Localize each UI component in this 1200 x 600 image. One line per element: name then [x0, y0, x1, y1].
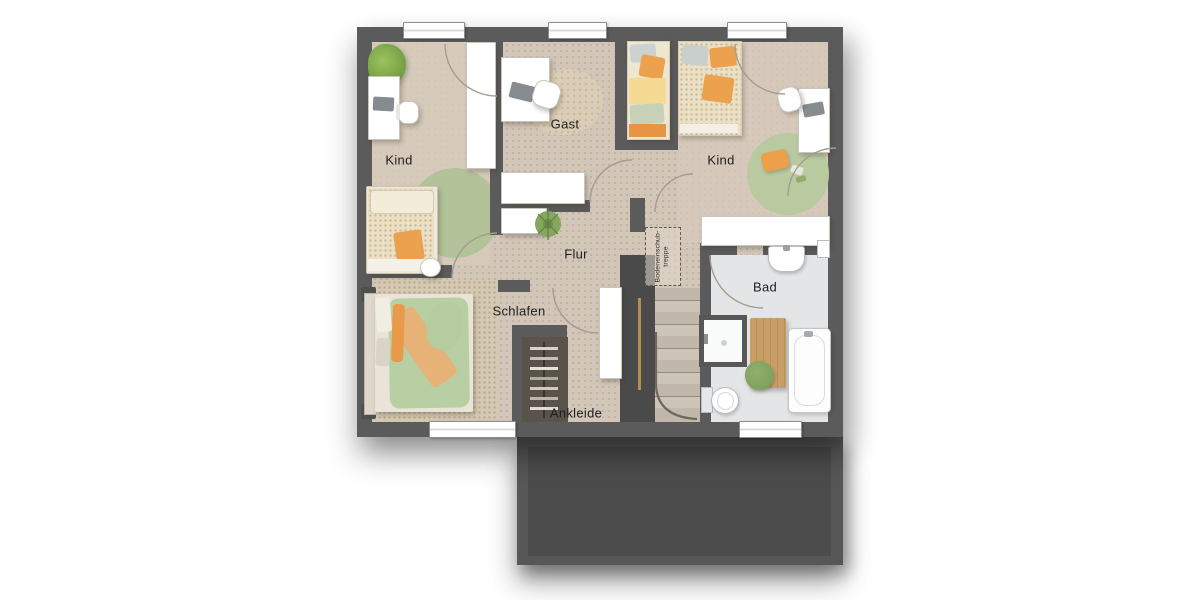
bathtub	[788, 328, 831, 413]
room-label-flur: Flur	[564, 247, 588, 262]
hanger	[530, 367, 558, 370]
blanket-orange	[393, 229, 425, 263]
hanger	[530, 347, 558, 350]
pillow-orange	[638, 54, 665, 80]
sideboard	[501, 172, 585, 204]
tall-cabinet	[599, 287, 622, 379]
office-chair	[398, 101, 419, 124]
room-label-kind-right: Kind	[707, 153, 734, 168]
lower-roof-panel	[528, 447, 831, 556]
bed-schlafen	[364, 290, 476, 416]
laptop	[802, 101, 825, 117]
washbasin	[768, 246, 805, 272]
pillow-orange	[709, 46, 737, 69]
towel-rail	[817, 240, 830, 258]
pillow	[375, 338, 390, 367]
toilet	[711, 387, 739, 414]
desk	[798, 88, 830, 153]
wall-flur-stub	[630, 198, 645, 232]
room-label-bad: Bad	[753, 280, 777, 295]
window	[739, 421, 802, 438]
bed-kind-right	[678, 41, 742, 136]
pillow	[375, 298, 392, 333]
tub-basin	[794, 335, 825, 406]
hanger	[530, 397, 558, 400]
staircase	[655, 288, 700, 422]
lower-roof-slab	[517, 437, 843, 565]
wardrobe	[466, 42, 496, 169]
window	[403, 22, 465, 39]
room-label-ankleide: Ankleide	[550, 406, 602, 421]
room-label-schlafen: Schlafen	[493, 304, 546, 319]
shower	[699, 315, 747, 367]
bed-foot	[680, 124, 738, 133]
window	[548, 22, 607, 39]
blanket-orange	[701, 74, 734, 104]
pillow	[681, 44, 709, 67]
laptop	[373, 96, 395, 111]
loft-hatch-label: Bodeneinschub- treppe	[655, 231, 672, 283]
stair-handrail	[638, 298, 641, 390]
room-label-kind-left: Kind	[385, 153, 412, 168]
pillow-green	[629, 103, 664, 125]
blanket-orange	[629, 124, 666, 137]
plant	[745, 361, 774, 390]
pillow	[370, 190, 434, 214]
room-label-gast: Gast	[551, 117, 580, 132]
stool	[420, 258, 441, 277]
duvet-yellow	[629, 78, 666, 104]
wall-ankleide-north	[512, 325, 567, 337]
stair-tread	[655, 408, 700, 422]
window	[727, 22, 787, 39]
bed-gast	[627, 41, 670, 140]
hanger	[530, 357, 558, 360]
shower-drain	[721, 340, 727, 346]
loft-hatch-box: Bodeneinschub- treppe	[645, 227, 681, 286]
pillow-orange	[391, 304, 405, 362]
wall-ankleide-west	[512, 325, 522, 422]
hanger	[530, 387, 558, 390]
chair-back	[396, 104, 400, 120]
shower-fitting	[704, 334, 708, 344]
window	[429, 421, 516, 438]
floor-plan-canvas: Bodeneinschub- treppe Kind Gast Kind Flu…	[0, 0, 1200, 600]
toilet-seat	[717, 392, 734, 410]
hanger	[530, 377, 558, 380]
sideboard	[701, 216, 830, 246]
sideboard	[501, 208, 547, 234]
faucet	[804, 331, 813, 337]
faucet	[783, 245, 790, 251]
wall-flur-south-stub	[498, 280, 530, 292]
